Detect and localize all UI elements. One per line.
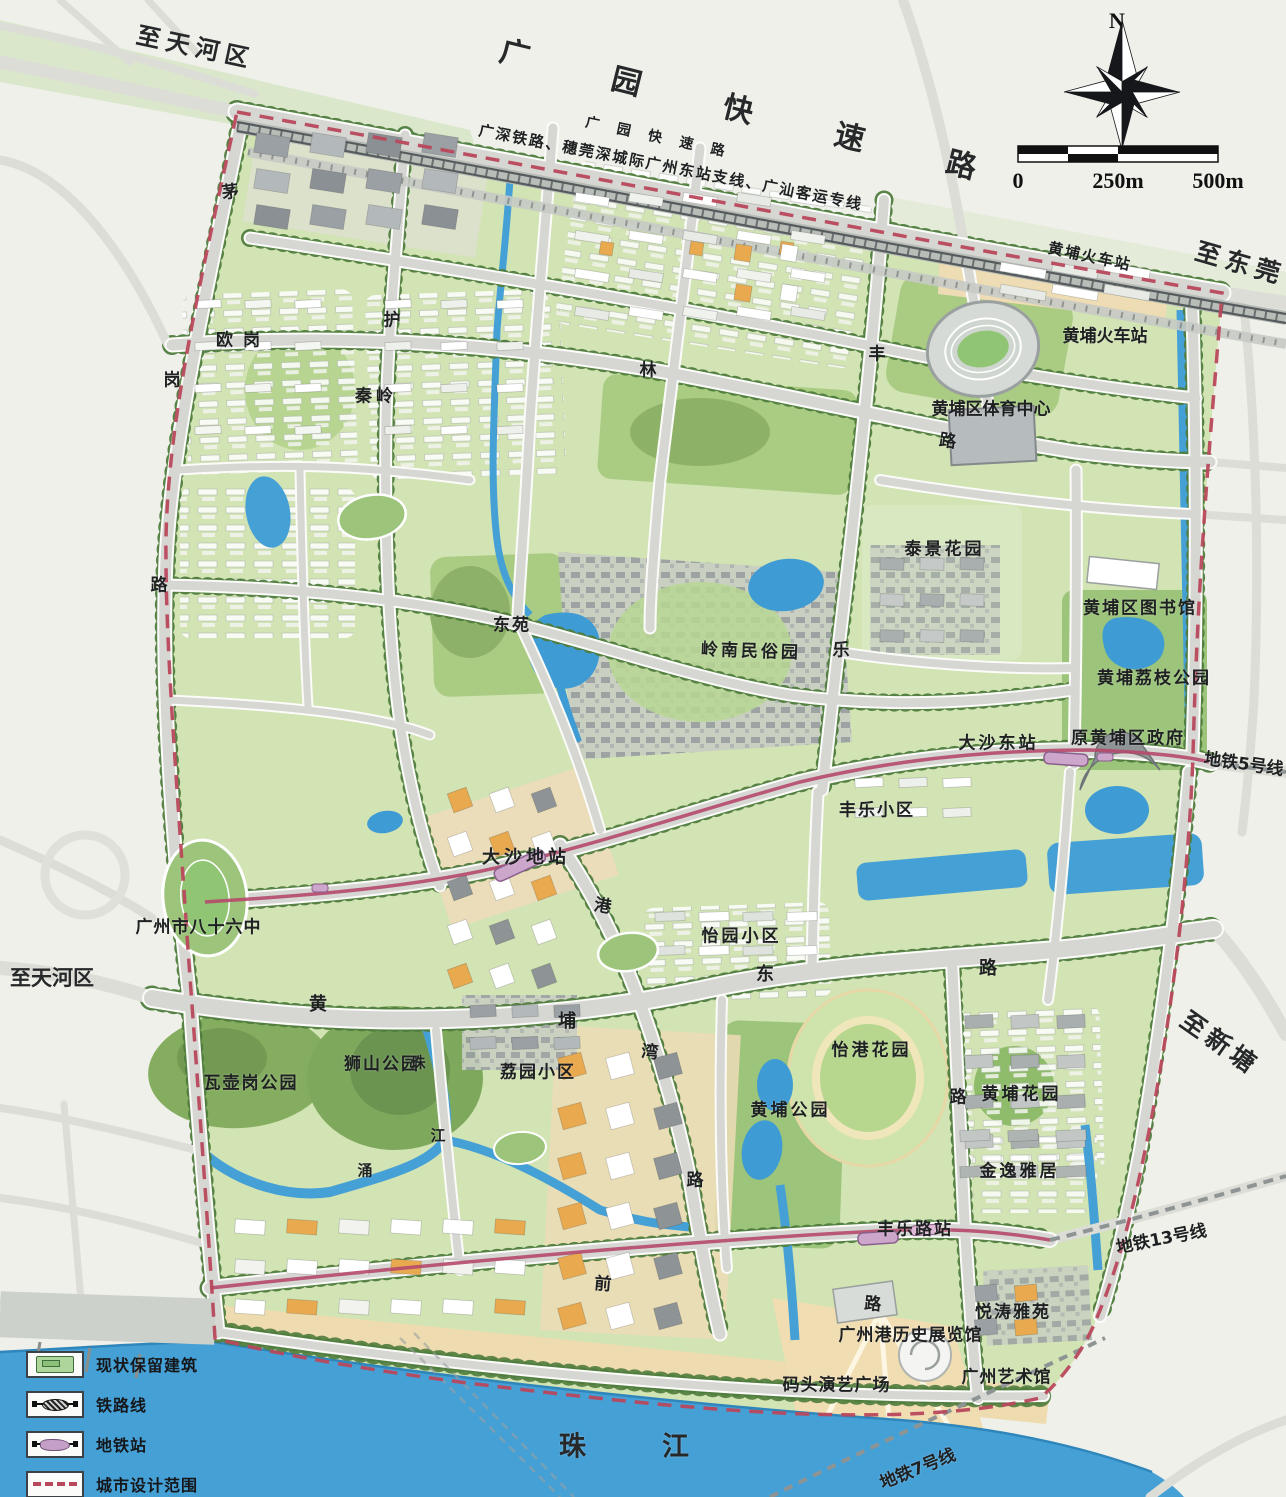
metro-station-icon-box [26,1431,84,1458]
legend-preserved-building-label: 现状保留建筑 [96,1352,198,1376]
legend-design-scope-label: 城市设计范围 [96,1472,198,1496]
metro-station-fenglelu [858,1231,899,1246]
legend-preserved-building: 现状保留建筑 [26,1350,198,1378]
railway-line-icon-box [26,1391,84,1418]
scalebar-tick-0: 0 [1013,168,1024,194]
legend-railway-line: 铁路线 [26,1390,198,1418]
legend-metro-station-label: 地铁站 [96,1432,147,1456]
design-scope-icon [33,1482,77,1486]
scalebar-tick-250: 250m [1092,168,1143,194]
metro-station-dashadong [1044,751,1089,766]
urban-design-map: N 0 250m 500m 至天河区广园快速路广园快速路广深铁路、穗莞深城际广州… [0,0,1286,1497]
railway-line-icon [32,1398,78,1410]
preserved-building-icon [36,1356,74,1373]
compass-north-label: N [1109,8,1125,34]
legend-metro-station: 地铁站 [26,1430,198,1458]
metro-station-icon [32,1438,78,1450]
map-legend: 现状保留建筑铁路线地铁站城市设计范围 [26,1350,198,1497]
scale-bar [1018,146,1218,162]
legend-railway-line-label: 铁路线 [96,1392,147,1416]
preserved-building-icon-box [26,1351,84,1378]
scalebar-tick-500: 500m [1192,168,1243,194]
map-canvas [0,0,1286,1497]
design-scope-icon-box [26,1471,84,1497]
legend-design-scope: 城市设计范围 [26,1470,198,1497]
